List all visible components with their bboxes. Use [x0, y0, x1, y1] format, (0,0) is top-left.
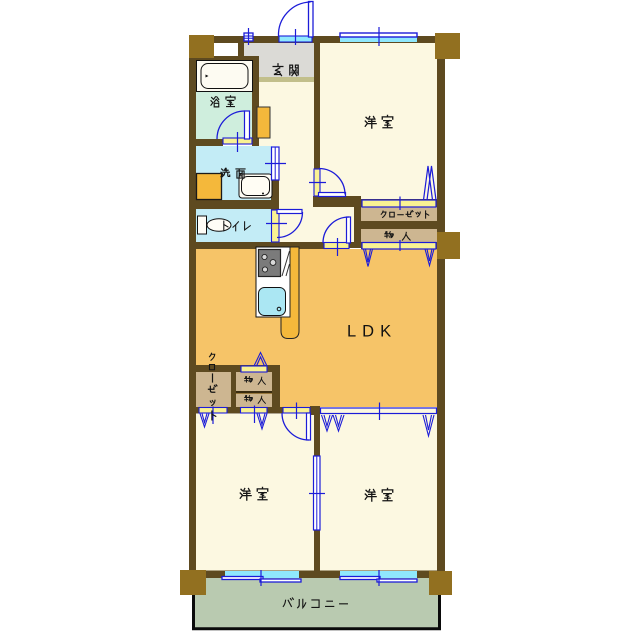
svg-text:LDK: LDK	[347, 323, 397, 341]
